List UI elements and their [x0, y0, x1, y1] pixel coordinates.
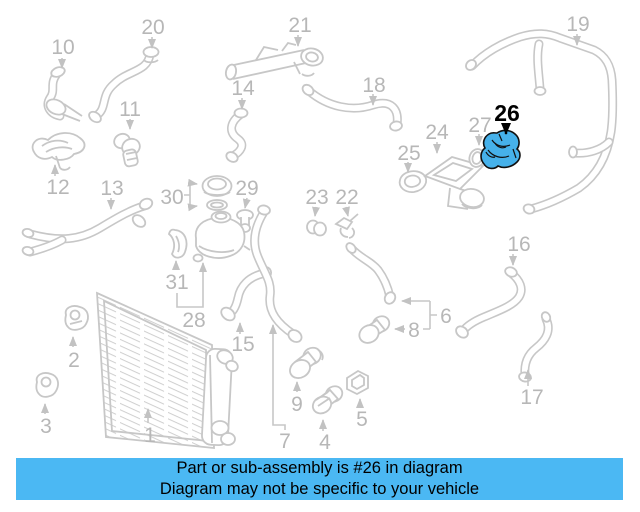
part-22-fitting [336, 214, 358, 238]
part-label-16[interactable]: 16 [507, 233, 530, 256]
part-12-pipe [33, 133, 85, 170]
part-14-hose [225, 109, 248, 164]
info-banner: Part or sub-assembly is #26 in diagram D… [16, 458, 623, 500]
part-label-4[interactable]: 4 [319, 431, 331, 454]
part-21-pipe-assembly [225, 43, 325, 80]
parts-diagram-page: 1 2 3 4 5 6 7 8 9 10 11 12 13 14 15 16 1… [0, 0, 640, 512]
part-31-bracket [169, 230, 187, 258]
part-label-3[interactable]: 3 [40, 415, 52, 438]
part-label-18[interactable]: 18 [362, 74, 385, 97]
part-label-10[interactable]: 10 [51, 36, 74, 59]
part-label-6[interactable]: 6 [440, 305, 452, 328]
part-label-21[interactable]: 21 [288, 14, 311, 37]
part-18-hose [301, 83, 403, 132]
part-label-8[interactable]: 8 [408, 319, 420, 342]
part-label-19[interactable]: 19 [566, 13, 589, 36]
part-label-20[interactable]: 20 [141, 16, 164, 39]
part-16-hose [454, 266, 521, 340]
part-label-31[interactable]: 31 [165, 271, 188, 294]
part-label-15[interactable]: 15 [231, 333, 254, 356]
part-4-fitting [310, 383, 345, 416]
part-label-23[interactable]: 23 [305, 186, 328, 209]
part-label-1[interactable]: 1 [144, 424, 156, 447]
part-10-hose [44, 65, 82, 121]
cooling-system-diagram: 1 2 3 4 5 6 7 8 9 10 11 12 13 14 15 16 1… [0, 0, 640, 512]
part-1-radiator [97, 293, 240, 448]
part-label-17[interactable]: 17 [520, 386, 543, 409]
part-23-fitting [307, 221, 326, 236]
info-banner-line1: Part or sub-assembly is #26 in diagram [16, 458, 623, 479]
part-label-9[interactable]: 9 [291, 393, 303, 416]
info-banner-line2: Diagram may not be specific to your vehi… [16, 479, 623, 500]
part-label-25[interactable]: 25 [397, 142, 420, 165]
part-label-13[interactable]: 13 [100, 177, 123, 200]
part-2-mount [65, 306, 88, 330]
part-6-hose [344, 241, 397, 305]
part-label-2[interactable]: 2 [68, 349, 80, 372]
part-13-pipe [22, 197, 154, 257]
part-label-30[interactable]: 30 [160, 186, 183, 209]
part-25-gasket [400, 171, 426, 192]
part-7-hose [255, 205, 304, 345]
part-label-5[interactable]: 5 [356, 408, 368, 431]
part-label-28[interactable]: 28 [182, 309, 205, 332]
part-label-26-highlighted[interactable]: 26 [494, 100, 520, 126]
part-8-fitting [356, 313, 392, 346]
part-label-27[interactable]: 27 [468, 114, 491, 137]
part-label-7[interactable]: 7 [279, 430, 291, 453]
part-17-hose [518, 311, 552, 383]
part-label-24[interactable]: 24 [425, 121, 449, 144]
part-label-29[interactable]: 29 [235, 177, 258, 200]
part-5-fitting [347, 371, 368, 394]
part-label-12[interactable]: 12 [46, 176, 69, 199]
part-9-fitting [287, 345, 324, 382]
part-label-14[interactable]: 14 [231, 77, 255, 100]
part-3-mount [36, 373, 58, 397]
part-11-sensor [112, 131, 143, 167]
part-label-11[interactable]: 11 [119, 98, 141, 121]
part-label-22[interactable]: 22 [335, 186, 358, 209]
part-30-cap-and-seal [203, 176, 232, 210]
